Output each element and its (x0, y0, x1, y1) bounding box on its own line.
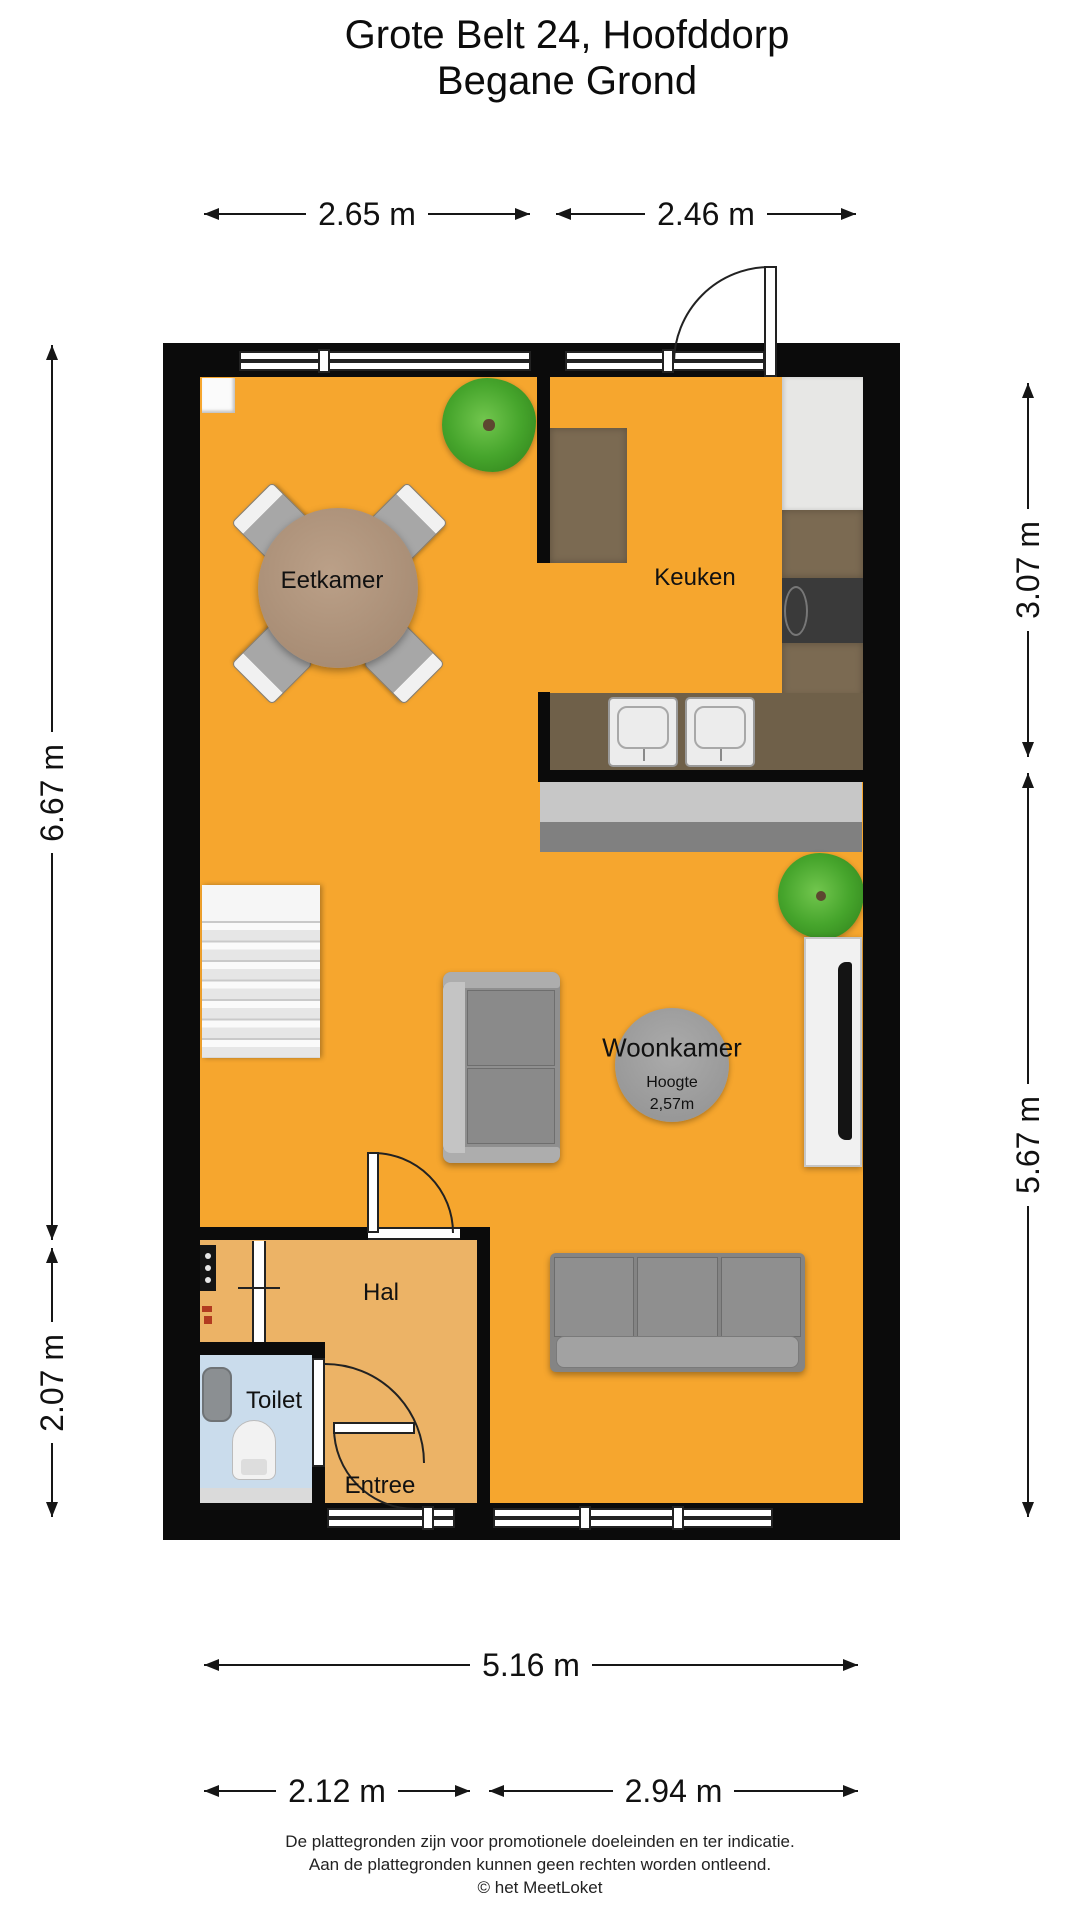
ceiling-height-value: 2,57m (650, 1096, 694, 1114)
dimension-arrow-line (1027, 1206, 1029, 1517)
dimension-arrow-line (51, 1248, 53, 1322)
dimension-arrow-line (204, 213, 306, 215)
back-door-leaf (764, 266, 777, 377)
window-entree (327, 1508, 455, 1528)
sideboard-front (540, 822, 862, 852)
dimension-left-upper: 6.67 m (32, 345, 72, 1240)
stair-landing (202, 885, 320, 923)
closet-door (252, 1241, 266, 1342)
kitchen-counter-right (782, 510, 863, 578)
stair-treads (202, 921, 320, 1058)
room-label-entree: Entree (345, 1472, 416, 1500)
dimension-arrow-line (428, 213, 530, 215)
page-title: Grote Belt 24, Hoofddorp Begane Grond (87, 12, 1047, 104)
room-label-hal: Hal (363, 1279, 399, 1307)
window-mullion (318, 349, 330, 373)
dimension-arrow-line (592, 1664, 858, 1666)
floorplan-page: Grote Belt 24, Hoofddorp Begane Grond 2.… (0, 0, 1080, 1920)
window-mullion (579, 1506, 591, 1530)
tv-cabinet (804, 937, 862, 1167)
sink (608, 697, 678, 767)
loveseat-sofa (443, 972, 560, 1163)
dimension-arrow-line (556, 213, 645, 215)
window-dining (239, 351, 531, 371)
dimension-right-upper: 3.07 m (1008, 383, 1048, 757)
dimension-label: 6.67 m (34, 732, 71, 854)
room-label-toilet: Toilet (246, 1387, 302, 1415)
sofa-cushion (467, 1068, 555, 1144)
dimension-arrow-line (1027, 773, 1029, 1084)
stove (782, 578, 863, 643)
washbasin (202, 1367, 232, 1422)
kitchen-appliance-counter (782, 377, 863, 510)
dimension-arrow-line (51, 1443, 53, 1517)
dimension-bottom-total: 5.16 m (204, 1648, 858, 1682)
wall-right (863, 343, 900, 1540)
wall-counter-stub (538, 692, 550, 773)
window-mullion (662, 349, 674, 373)
meter-cabinet (200, 1245, 216, 1291)
sofa-seat (556, 1336, 799, 1368)
sofa-cushion (467, 990, 555, 1066)
sideboard-top (540, 782, 862, 822)
toilet-door-leaf (312, 1358, 325, 1467)
meter-symbol (204, 1316, 212, 1324)
room-label-eetkamer: Eetkamer (281, 567, 384, 595)
dimension-arrow-line (398, 1790, 470, 1792)
disclaimer-line2: Aan de plattegronden kunnen geen rechten… (0, 1853, 1080, 1876)
dimension-label: 5.67 m (1010, 1084, 1047, 1206)
toilet-floor-strip (198, 1488, 312, 1503)
dimension-arrow-line (204, 1664, 470, 1666)
sink-basin (694, 706, 746, 749)
wall-toilet-top (198, 1342, 325, 1355)
ceiling-height-label: Hoogte (646, 1074, 698, 1092)
wall-kitchen-living (538, 770, 863, 782)
room-label-keuken: Keuken (654, 564, 735, 592)
dimension-top-left: 2.65 m (204, 197, 530, 231)
dimension-arrow-line (489, 1790, 613, 1792)
front-door-leaf (333, 1422, 415, 1434)
sink-tap (643, 749, 645, 761)
wall-left (163, 343, 200, 1540)
sink-basin (617, 706, 669, 749)
closet-door-tick (238, 1287, 280, 1289)
sink (685, 697, 755, 767)
dimension-arrow-line (734, 1790, 858, 1792)
toilet-bowl (232, 1420, 276, 1480)
page-title-line2: Begane Grond (87, 58, 1047, 104)
dimension-left-lower: 2.07 m (32, 1248, 72, 1517)
room-label-woonkamer: Woonkamer (602, 1033, 742, 1064)
dimension-label: 2.12 m (276, 1773, 398, 1810)
wall-kitchen-partition (537, 377, 550, 563)
window-mullion (422, 1506, 434, 1530)
sofa-backrest (443, 982, 465, 1153)
dimension-label: 2.07 m (34, 1322, 71, 1444)
wall-hall-top (200, 1227, 368, 1240)
dimension-arrow-line (1027, 631, 1029, 757)
dimension-label: 5.16 m (470, 1647, 592, 1684)
dimension-label: 2.65 m (306, 196, 428, 233)
dimension-bottom-left: 2.12 m (204, 1774, 470, 1808)
meter-symbol (202, 1306, 212, 1312)
window-mullion (672, 1506, 684, 1530)
window-living (493, 1508, 773, 1528)
hall-door-leaf (367, 1152, 379, 1233)
dimension-arrow-line (204, 1790, 276, 1792)
wall-hall-living (477, 1240, 490, 1503)
copyright: © het MeetLoket (0, 1876, 1080, 1899)
page-title-line1: Grote Belt 24, Hoofddorp (87, 12, 1047, 58)
dimension-right-lower: 5.67 m (1008, 773, 1048, 1517)
dimension-label: 2.46 m (645, 196, 767, 233)
dimension-arrow-line (51, 853, 53, 1240)
tv-screen (838, 962, 852, 1140)
dimension-bottom-right: 2.94 m (489, 1774, 858, 1808)
dimension-label: 2.94 m (613, 1773, 735, 1810)
dimension-label: 3.07 m (1010, 509, 1047, 631)
plant (778, 853, 864, 939)
plant (442, 378, 536, 472)
kitchen-cabinet (550, 428, 627, 563)
wall-hall-top-end (460, 1227, 490, 1240)
dimension-arrow-line (1027, 383, 1029, 509)
disclaimer-line1: De plattegronden zijn voor promotionele … (0, 1830, 1080, 1853)
dimension-top-right: 2.46 m (556, 197, 856, 231)
three-seat-sofa (550, 1253, 805, 1372)
sink-tap (720, 749, 722, 761)
dimension-arrow-line (51, 345, 53, 732)
sofa-back-cushions (554, 1257, 801, 1337)
dimension-arrow-line (767, 213, 856, 215)
staircase (202, 885, 320, 1058)
kitchen-counter-right-lower (782, 643, 863, 697)
toilet-lid (241, 1459, 267, 1475)
wall-niche (202, 378, 235, 413)
disclaimer: De plattegronden zijn voor promotionele … (0, 1830, 1080, 1899)
